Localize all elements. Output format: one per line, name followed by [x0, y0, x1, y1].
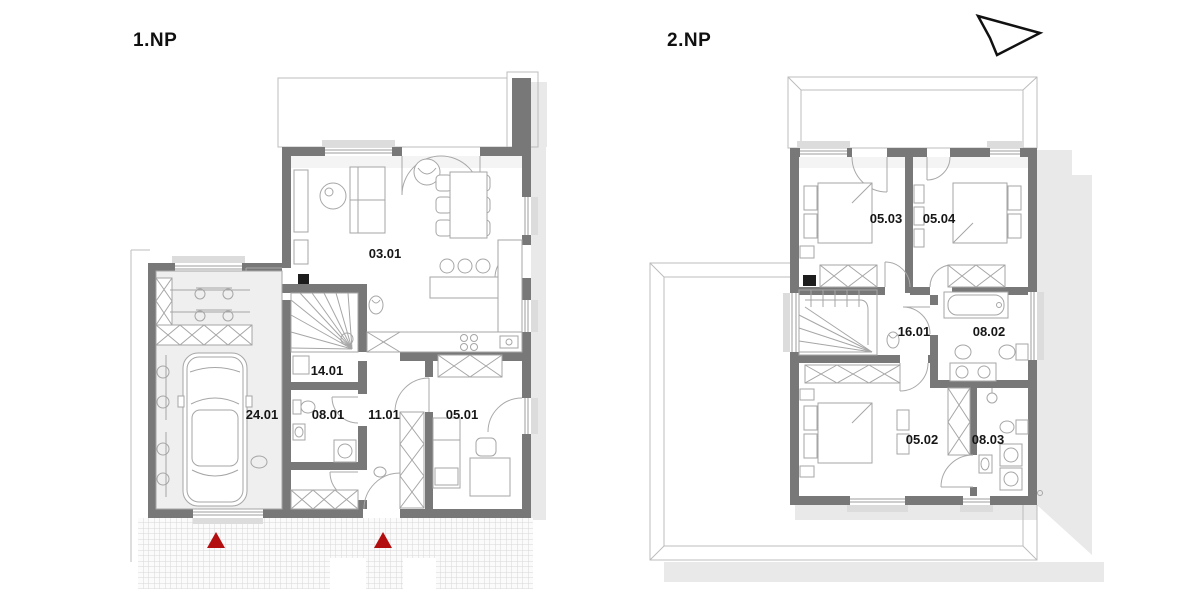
site-plan-svg: 03.01 14.01 24.01 08.01 11.01 05.01 1.NP [0, 0, 1200, 600]
room-label-0504: 05.04 [923, 211, 956, 226]
room-label-0301: 03.01 [369, 246, 402, 261]
flue-block [298, 274, 309, 284]
floor1-title: 1.NP [133, 30, 177, 51]
room-label-0502: 05.02 [906, 432, 939, 447]
room-label-1101: 11.01 [368, 407, 400, 422]
floor1-staircase [291, 293, 358, 374]
floorplan-canvas: 03.01 14.01 24.01 08.01 11.01 05.01 1.NP [0, 0, 1200, 600]
balcony-outline [788, 77, 1037, 148]
garage-car [178, 353, 252, 506]
room-label-0803: 08.03 [972, 432, 1005, 447]
north-arrow-icon [978, 16, 1040, 55]
corridor-wardrobes [291, 412, 424, 509]
room-label-0802: 08.02 [973, 324, 1006, 339]
flue-block [803, 275, 816, 286]
room-label-0501: 05.01 [446, 407, 479, 422]
bedroom-0504 [914, 183, 1021, 287]
floor2-title: 2.NP [667, 30, 711, 51]
floor2-staircase [799, 290, 899, 355]
room-label-0801: 08.01 [312, 407, 345, 422]
floor2-plan: 05.03 05.04 16.01 08.02 05.02 08.03 2.NP [650, 30, 1104, 582]
room-label-0503: 05.03 [870, 211, 903, 226]
room-label-2401: 24.01 [246, 407, 279, 422]
dining-set [436, 172, 490, 238]
roof-terrace-outline [278, 78, 507, 147]
room-label-1401: 14.01 [311, 363, 344, 378]
garage [156, 271, 282, 509]
living-room-furniture [294, 159, 440, 264]
bedroom-0501 [433, 355, 510, 496]
room-label-1601: 16.01 [898, 324, 931, 339]
floor1-plan: 03.01 14.01 24.01 08.01 11.01 05.01 1.NP [131, 30, 547, 589]
bedroom-0503 [800, 183, 877, 287]
